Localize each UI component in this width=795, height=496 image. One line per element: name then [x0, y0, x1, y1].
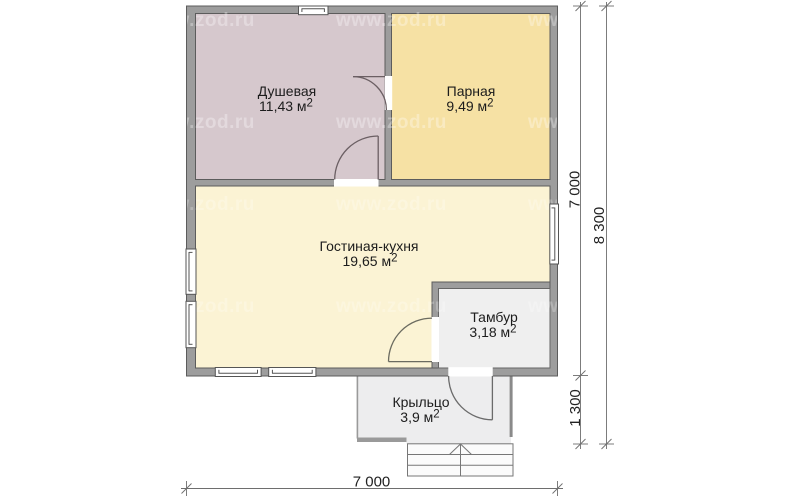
- svg-text:8 300: 8 300: [591, 207, 608, 245]
- svg-text:Гостиная-кухня: Гостиная-кухня: [319, 238, 418, 254]
- svg-text:www.zod.ru: www.zod.ru: [335, 194, 447, 215]
- svg-text:www.zod.ru: www.zod.ru: [335, 296, 447, 317]
- svg-text:Крыльцо: Крыльцо: [392, 394, 449, 410]
- svg-text:19,65 м2: 19,65 м2: [343, 253, 398, 270]
- svg-text:www.zod.ru: www.zod.ru: [335, 112, 447, 133]
- svg-text:7 000: 7 000: [353, 474, 391, 491]
- svg-text:3,18 м2: 3,18 м2: [469, 324, 516, 341]
- svg-text:7 000: 7 000: [566, 171, 583, 209]
- svg-text:1 300: 1 300: [567, 389, 584, 427]
- svg-text:11,43 м2: 11,43 м2: [259, 98, 313, 115]
- svg-text:9,49 м2: 9,49 м2: [446, 98, 493, 115]
- svg-text:www.zod.ru: www.zod.ru: [335, 10, 447, 31]
